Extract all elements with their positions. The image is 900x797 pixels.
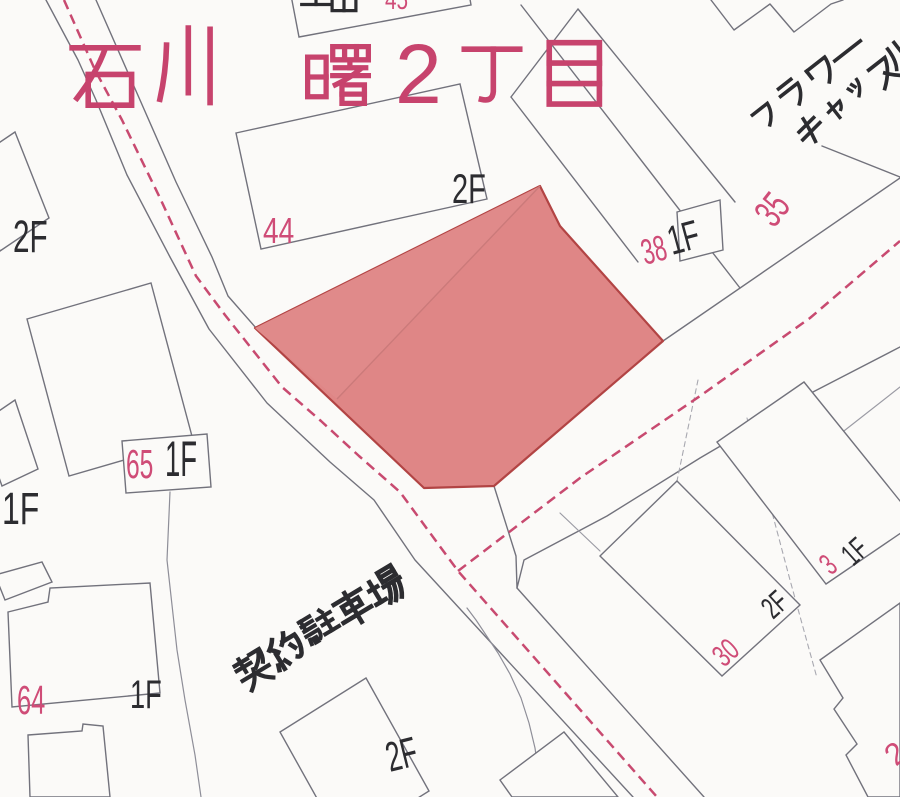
svg-text:2F: 2F xyxy=(452,165,486,213)
svg-text:64: 64 xyxy=(17,678,45,724)
svg-text:45: 45 xyxy=(385,0,408,16)
svg-text:65: 65 xyxy=(126,442,153,488)
svg-text:2F: 2F xyxy=(13,212,48,263)
svg-text:1F: 1F xyxy=(2,485,39,535)
svg-text:2: 2 xyxy=(395,27,442,121)
svg-text:1F: 1F xyxy=(165,430,197,487)
svg-text:1F: 1F xyxy=(130,673,162,717)
svg-text:44: 44 xyxy=(263,211,294,251)
